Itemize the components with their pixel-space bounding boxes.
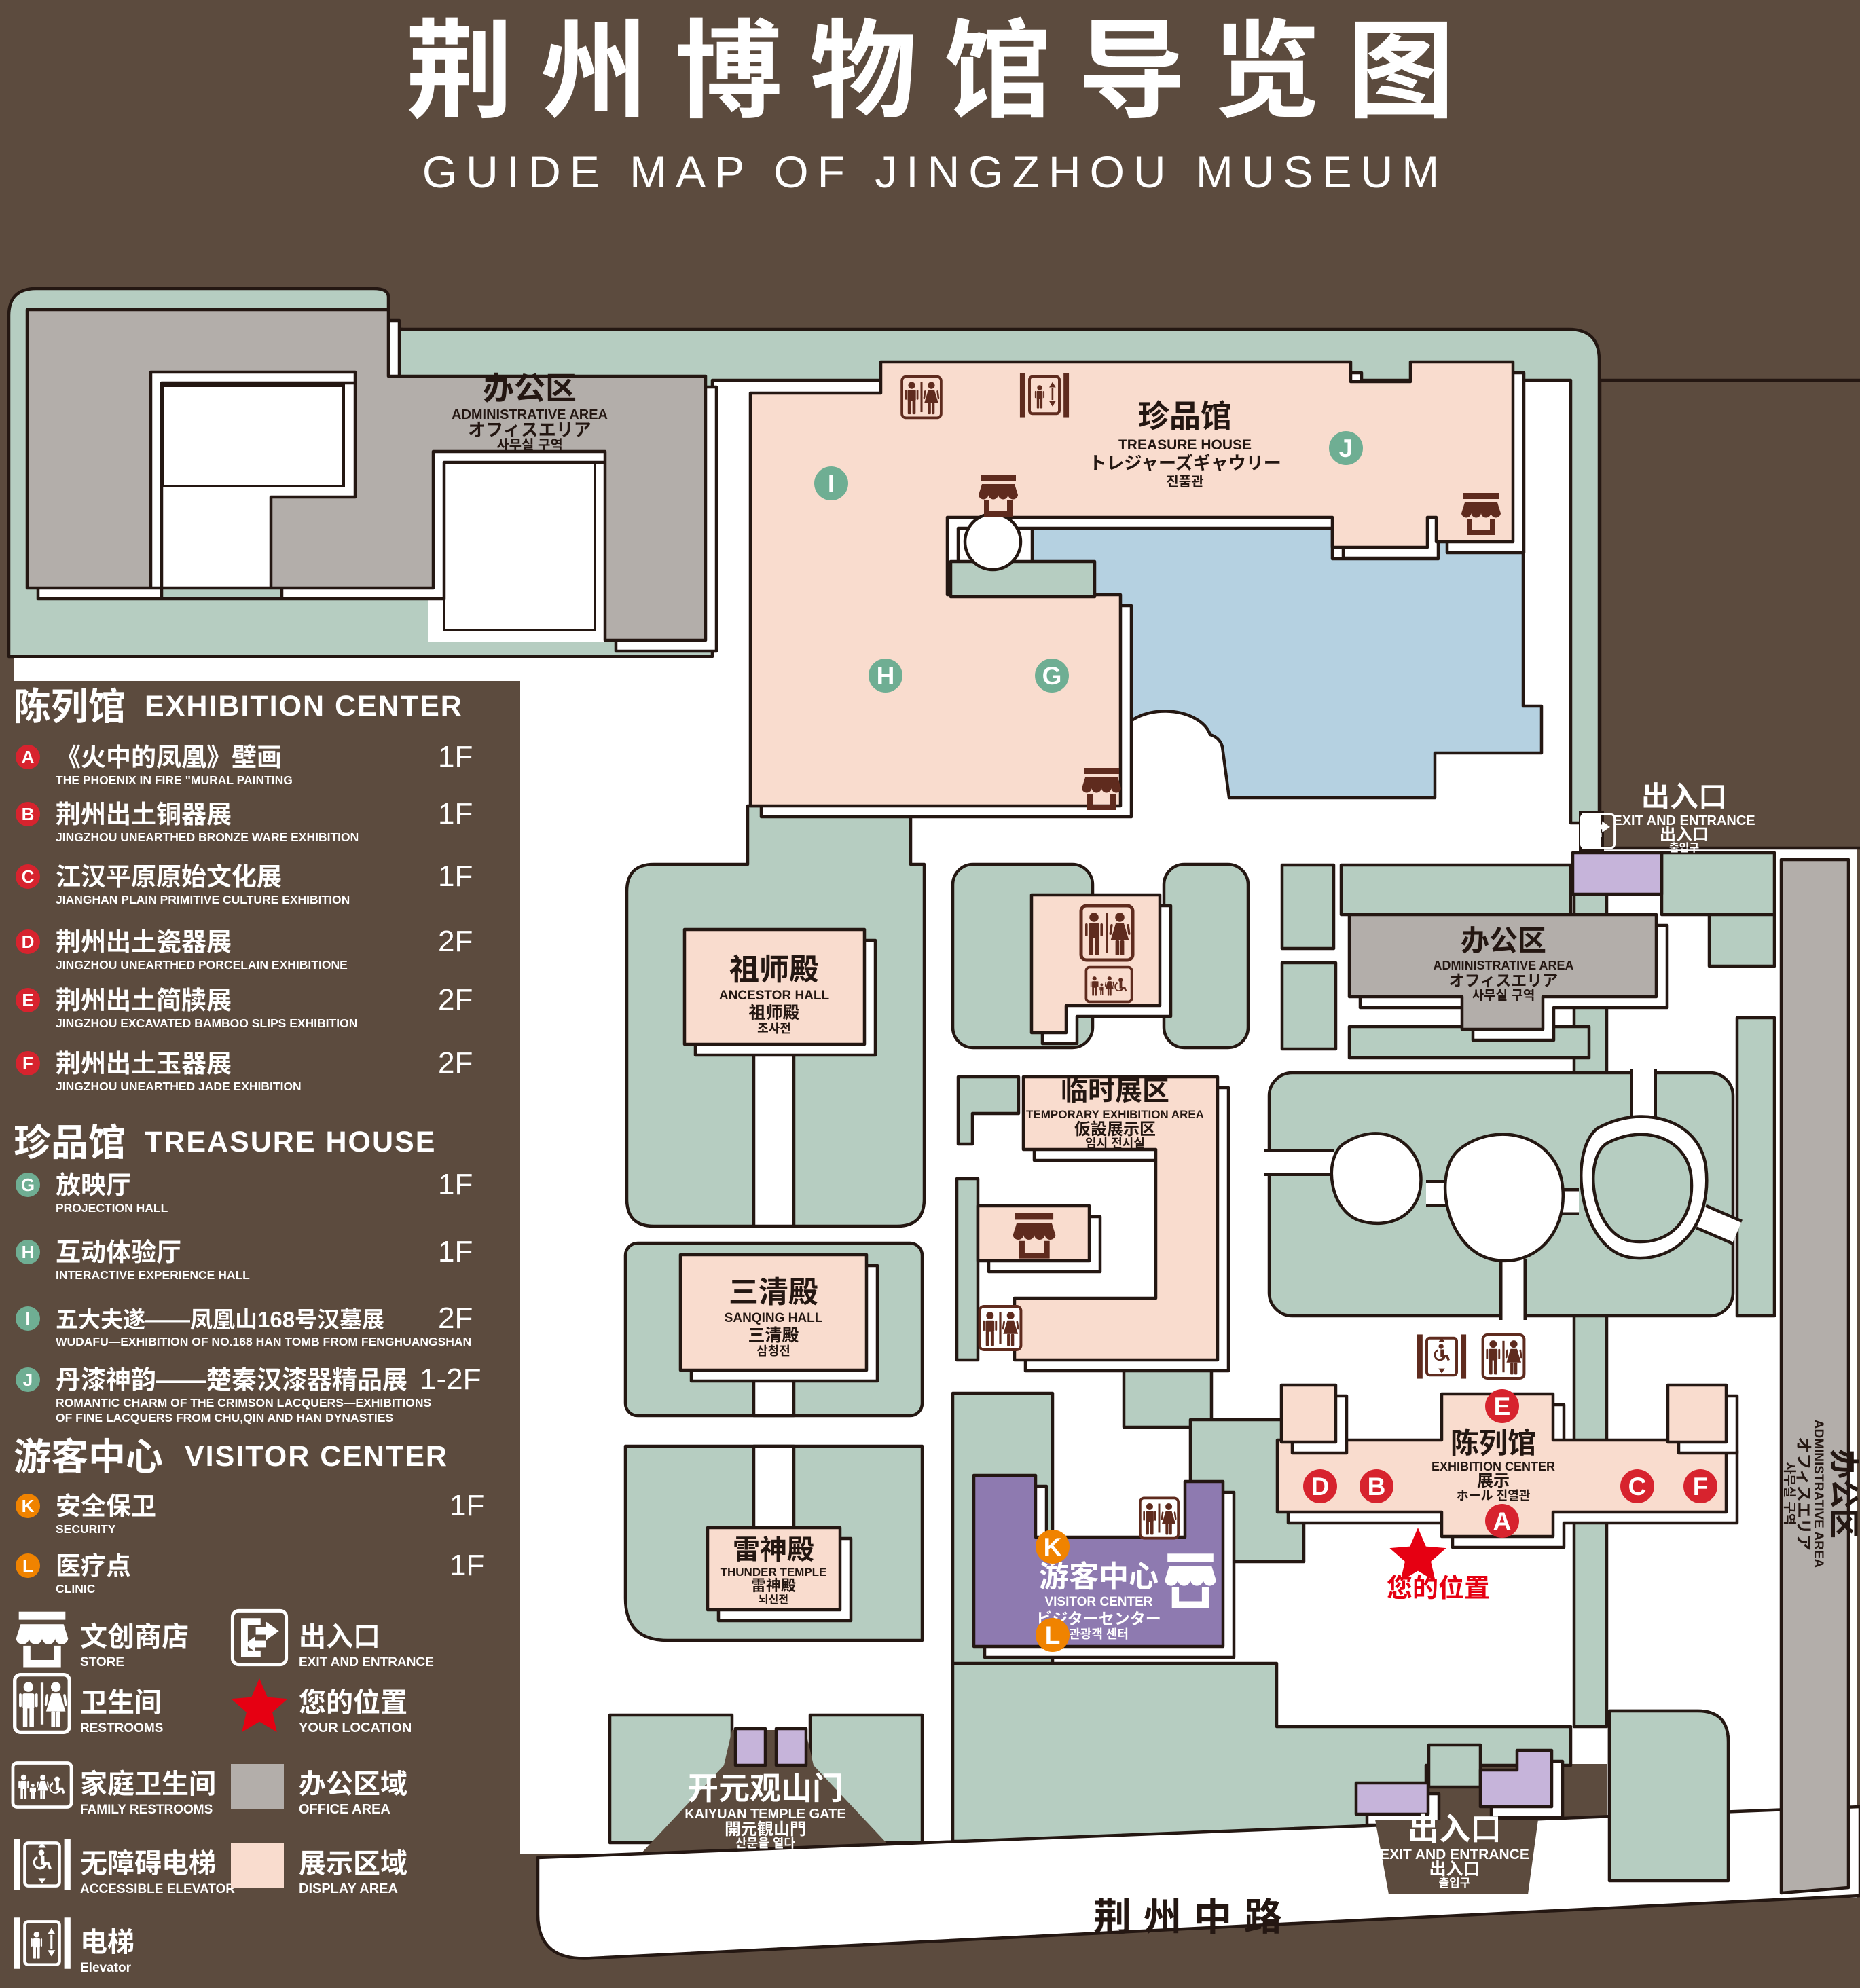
svg-text:医疗点: 医疗点 xyxy=(56,1552,131,1580)
svg-text:办公区域: 办公区域 xyxy=(299,1769,407,1799)
svg-text:オフィスエリア: オフィスエリア xyxy=(1449,972,1558,989)
svg-text:1F: 1F xyxy=(438,860,473,893)
svg-text:산문을 열다: 산문을 열다 xyxy=(735,1837,795,1850)
svg-text:JIANGHAN PLAIN PRIMITIVE CULTU: JIANGHAN PLAIN PRIMITIVE CULTURE EXHIBIT… xyxy=(56,893,350,906)
svg-text:JINGZHOU EXCAVATED BAMBOO SLIP: JINGZHOU EXCAVATED BAMBOO SLIPS EXHIBITI… xyxy=(56,1016,357,1030)
svg-text:1F: 1F xyxy=(438,740,473,773)
svg-text:L: L xyxy=(22,1556,33,1576)
svg-text:F: F xyxy=(1693,1473,1709,1501)
svg-text:荆州出土瓷器展: 荆州出土瓷器展 xyxy=(56,928,232,956)
svg-text:사무실 구역: 사무실 구역 xyxy=(496,437,563,453)
svg-text:J: J xyxy=(23,1369,33,1390)
svg-text:A: A xyxy=(1493,1507,1512,1535)
svg-text:K: K xyxy=(22,1496,35,1516)
svg-text:I: I xyxy=(828,470,835,498)
svg-text:1-2F: 1-2F xyxy=(420,1363,481,1396)
svg-text:JINGZHOU UNEARTHED PORCELAIN E: JINGZHOU UNEARTHED PORCELAIN EXHIBITIONE xyxy=(56,958,348,972)
svg-text:放映厅: 放映厅 xyxy=(56,1171,131,1199)
svg-text:STORE: STORE xyxy=(80,1655,124,1670)
svg-text:F: F xyxy=(22,1053,33,1073)
svg-text:VISITOR CENTER: VISITOR CENTER xyxy=(1044,1595,1152,1609)
svg-text:K: K xyxy=(1044,1533,1062,1561)
svg-text:TEMPORARY EXHIBITION AREA: TEMPORARY EXHIBITION AREA xyxy=(1026,1108,1204,1121)
svg-text:WUDAFU—EXHIBITION OF NO.168 HA: WUDAFU—EXHIBITION OF NO.168 HAN TOMB FRO… xyxy=(56,1335,471,1348)
svg-text:DISPLAY AREA: DISPLAY AREA xyxy=(299,1881,398,1896)
svg-text:临时展区: 临时展区 xyxy=(1061,1076,1169,1106)
svg-text:1F: 1F xyxy=(450,1549,484,1582)
svg-text:出入口: 出入口 xyxy=(1408,1811,1501,1847)
svg-text:EXHIBITION CENTER: EXHIBITION CENTER xyxy=(1432,1460,1555,1473)
svg-text:荆州出土玉器展: 荆州出土玉器展 xyxy=(56,1050,232,1078)
svg-text:五大夫遂——凤凰山168号汉墓展: 五大夫遂——凤凰山168号汉墓展 xyxy=(56,1307,384,1332)
svg-text:D: D xyxy=(1311,1473,1330,1501)
svg-text:G: G xyxy=(21,1175,35,1195)
svg-text:ACCESSIBLE ELEVATOR: ACCESSIBLE ELEVATOR xyxy=(80,1882,235,1896)
svg-text:KAIYUAN TEMPLE GATE: KAIYUAN TEMPLE GATE xyxy=(685,1807,845,1822)
svg-text:CLINIC: CLINIC xyxy=(56,1582,96,1596)
svg-text:TREASURE HOUSE: TREASURE HOUSE xyxy=(145,1126,436,1158)
svg-text:B: B xyxy=(1368,1473,1386,1501)
svg-text:L: L xyxy=(1045,1621,1061,1649)
svg-text:オフィスエリア: オフィスエリア xyxy=(1794,1437,1812,1551)
svg-text:荆州出土铜器展: 荆州出土铜器展 xyxy=(56,800,232,828)
svg-text:珍品馆: 珍品馆 xyxy=(1138,399,1232,434)
svg-text:仮設展示区: 仮設展示区 xyxy=(1074,1120,1156,1139)
svg-text:관광객 센터: 관광객 센터 xyxy=(1069,1627,1129,1641)
svg-text:D: D xyxy=(22,932,35,952)
svg-text:삼청전: 삼청전 xyxy=(756,1344,790,1358)
svg-text:SANQING HALL: SANQING HALL xyxy=(725,1311,823,1325)
svg-text:トレジャーズギャウリー: トレジャーズギャウリー xyxy=(1089,453,1281,473)
svg-text:OFFICE AREA: OFFICE AREA xyxy=(299,1802,390,1817)
svg-text:출입구: 출입구 xyxy=(1669,842,1699,854)
svg-text:PROJECTION HALL: PROJECTION HALL xyxy=(56,1201,168,1215)
svg-text:ROMANTIC CHARM OF THE CRIMSON: ROMANTIC CHARM OF THE CRIMSON LACQUERS—E… xyxy=(56,1396,431,1410)
svg-text:祖师殿: 祖师殿 xyxy=(729,953,819,987)
svg-text:珍品馆: 珍品馆 xyxy=(14,1122,126,1164)
svg-text:2F: 2F xyxy=(438,1046,473,1080)
svg-text:C: C xyxy=(1628,1473,1647,1501)
svg-text:B: B xyxy=(22,804,35,824)
svg-text:EXHIBITION CENTER: EXHIBITION CENTER xyxy=(145,690,463,722)
svg-text:A: A xyxy=(22,747,35,767)
svg-text:FAMILY RESTROOMS: FAMILY RESTROOMS xyxy=(80,1803,213,1817)
svg-text:雷神殿: 雷神殿 xyxy=(733,1535,814,1565)
svg-text:INTERACTIVE EXPERIENCE HALL: INTERACTIVE EXPERIENCE HALL xyxy=(56,1268,250,1282)
svg-text:2F: 2F xyxy=(438,925,473,958)
svg-text:1F: 1F xyxy=(438,797,473,830)
svg-text:E: E xyxy=(22,990,33,1010)
svg-text:您的位置: 您的位置 xyxy=(1387,1575,1490,1603)
svg-text:TREASURE HOUSE: TREASURE HOUSE xyxy=(1118,437,1252,453)
svg-text:オフィスエリア: オフィスエリア xyxy=(468,420,591,440)
svg-text:ホール 진열관: ホール 진열관 xyxy=(1457,1489,1531,1503)
svg-text:ADMINISTRATIVE AREA: ADMINISTRATIVE AREA xyxy=(1811,1420,1825,1568)
svg-text:OF FINE LACQUERS FROM CHU,QIN: OF FINE LACQUERS FROM CHU,QIN AND HAN DY… xyxy=(56,1411,393,1424)
svg-text:開元観山門: 開元観山門 xyxy=(725,1820,806,1839)
svg-text:H: H xyxy=(22,1242,35,1262)
svg-text:江汉平原原始文化展: 江汉平原原始文化展 xyxy=(56,863,282,891)
svg-text:游客中心: 游客中心 xyxy=(14,1436,163,1478)
svg-text:사무실 구역: 사무실 구역 xyxy=(1782,1462,1797,1526)
svg-text:1F: 1F xyxy=(438,1168,473,1201)
svg-text:《火中的凤凰》壁画: 《火中的凤凰》壁画 xyxy=(56,743,282,771)
svg-text:I: I xyxy=(25,1308,30,1329)
svg-text:荆州博物馆导览图: 荆州博物馆导览图 xyxy=(406,12,1482,132)
svg-text:雷神殿: 雷神殿 xyxy=(751,1577,796,1594)
svg-text:EXIT AND ENTRANCE: EXIT AND ENTRANCE xyxy=(299,1655,434,1670)
svg-text:荆州中路: 荆州中路 xyxy=(1093,1896,1294,1938)
svg-text:뇌신전: 뇌신전 xyxy=(759,1594,788,1606)
svg-text:出入口: 出入口 xyxy=(299,1622,380,1652)
svg-text:2F: 2F xyxy=(438,1302,473,1335)
svg-text:ANCESTOR HALL: ANCESTOR HALL xyxy=(719,989,830,1003)
svg-text:C: C xyxy=(22,866,35,887)
svg-text:SECURITY: SECURITY xyxy=(56,1522,116,1536)
svg-text:卫生间: 卫生间 xyxy=(80,1688,162,1718)
svg-text:출입구: 출입구 xyxy=(1439,1877,1471,1890)
svg-text:陈列馆: 陈列馆 xyxy=(1451,1427,1536,1459)
svg-text:JINGZHOU UNEARTHED BRONZE WARE: JINGZHOU UNEARTHED BRONZE WARE EXHIBITIO… xyxy=(56,830,359,844)
svg-text:电梯: 电梯 xyxy=(80,1928,134,1957)
svg-text:出入口: 出入口 xyxy=(1660,826,1709,844)
svg-text:GUIDE MAP OF JINGZHOU MUSEUM: GUIDE MAP OF JINGZHOU MUSEUM xyxy=(422,147,1448,197)
svg-text:出入口: 出入口 xyxy=(1641,781,1727,813)
svg-text:사무실 구역: 사무실 구역 xyxy=(1472,988,1535,1003)
svg-text:1F: 1F xyxy=(450,1489,484,1522)
svg-text:三清殿: 三清殿 xyxy=(729,1276,818,1309)
svg-text:진품관: 진품관 xyxy=(1166,474,1203,490)
svg-text:JINGZHOU UNEARTHED JADE EXHIBI: JINGZHOU UNEARTHED JADE EXHIBITION xyxy=(56,1080,302,1093)
svg-text:无障碍电梯: 无障碍电梯 xyxy=(80,1849,216,1879)
svg-text:H: H xyxy=(877,662,895,690)
svg-text:YOUR LOCATION: YOUR LOCATION xyxy=(299,1720,412,1735)
svg-text:文创商店: 文创商店 xyxy=(80,1622,189,1652)
svg-text:展示: 展示 xyxy=(1477,1472,1510,1490)
svg-text:G: G xyxy=(1042,662,1062,690)
svg-text:办公区: 办公区 xyxy=(483,371,577,406)
svg-text:Elevator: Elevator xyxy=(80,1961,132,1975)
svg-text:조사전: 조사전 xyxy=(757,1022,791,1035)
svg-text:出入口: 出入口 xyxy=(1429,1860,1480,1879)
svg-text:1F: 1F xyxy=(438,1235,473,1268)
svg-text:安全保卫: 安全保卫 xyxy=(56,1492,156,1520)
svg-text:THE PHOENIX IN FIRE "MURAL PAI: THE PHOENIX IN FIRE "MURAL PAINTING xyxy=(56,773,293,787)
svg-text:展示区域: 展示区域 xyxy=(299,1849,407,1879)
svg-text:家庭卫生间: 家庭卫生间 xyxy=(80,1769,216,1799)
svg-text:您的位置: 您的位置 xyxy=(299,1688,407,1718)
svg-text:ADMINISTRATIVE AREA: ADMINISTRATIVE AREA xyxy=(1434,959,1574,972)
svg-text:2F: 2F xyxy=(438,983,473,1016)
svg-text:三清殿: 三清殿 xyxy=(748,1326,799,1345)
svg-text:陈列馆: 陈列馆 xyxy=(14,686,126,728)
svg-text:荆州出土简牍展: 荆州出土简牍展 xyxy=(56,987,232,1014)
svg-text:开元观山门: 开元观山门 xyxy=(687,1771,843,1806)
svg-text:祖师殿: 祖师殿 xyxy=(748,1004,799,1023)
svg-text:游客中心: 游客中心 xyxy=(1039,1560,1159,1594)
svg-text:互动体验厅: 互动体验厅 xyxy=(56,1238,181,1266)
svg-text:J: J xyxy=(1339,435,1353,462)
svg-text:丹漆神韵——楚秦汉漆器精品展: 丹漆神韵——楚秦汉漆器精品展 xyxy=(56,1366,407,1394)
svg-text:办公区: 办公区 xyxy=(1461,925,1546,957)
svg-text:VISITOR CENTER: VISITOR CENTER xyxy=(185,1440,448,1473)
svg-text:办公区: 办公区 xyxy=(1827,1449,1860,1539)
svg-text:E: E xyxy=(1494,1393,1511,1420)
svg-text:임시 전시실: 임시 전시실 xyxy=(1085,1137,1145,1150)
svg-text:RESTROOMS: RESTROOMS xyxy=(80,1721,163,1735)
